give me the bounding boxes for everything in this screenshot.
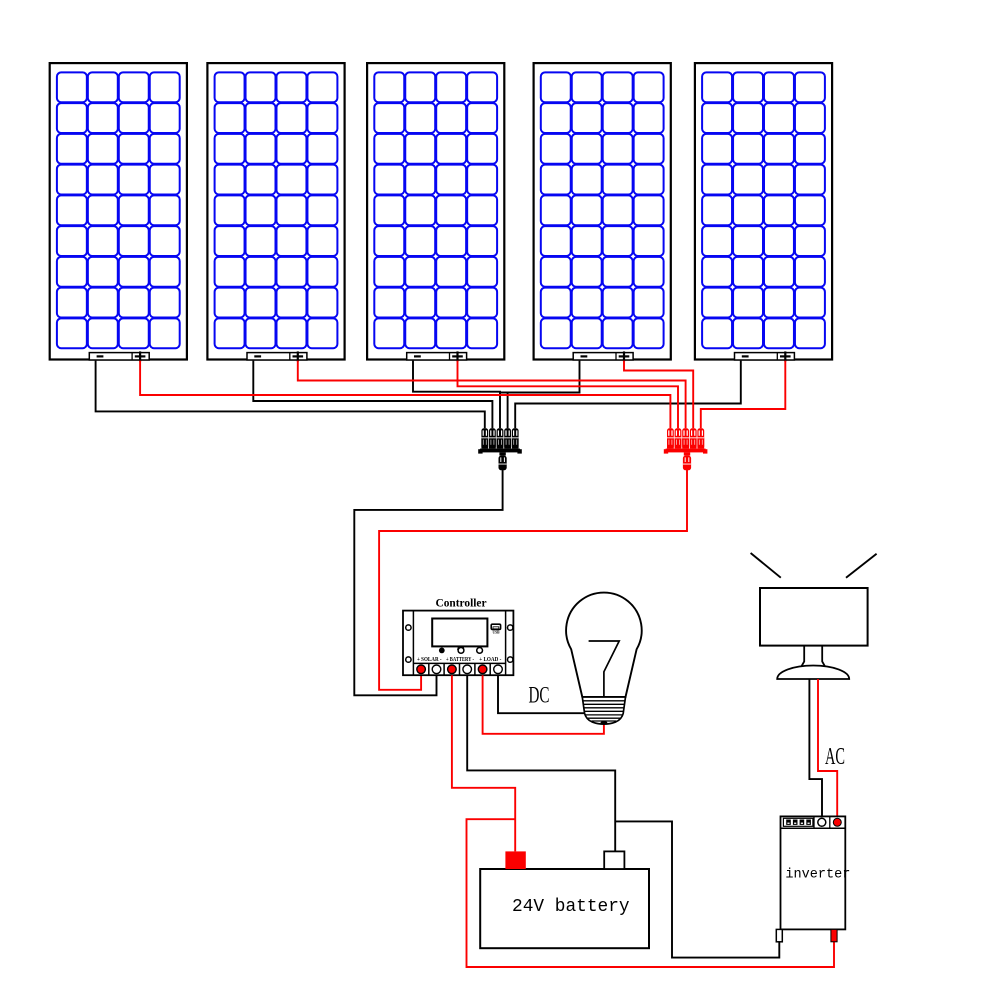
- svg-text:USB: USB: [493, 630, 501, 634]
- svg-text:DC: DC: [529, 683, 550, 709]
- svg-text:+ BATTERY -: + BATTERY -: [446, 656, 474, 663]
- svg-text:Controller: Controller: [436, 598, 487, 610]
- svg-text:inverter: inverter: [785, 868, 850, 883]
- svg-text:24V battery: 24V battery: [512, 896, 630, 917]
- svg-text:+ LOAD -: + LOAD -: [479, 656, 501, 663]
- svg-text:AC: AC: [825, 744, 845, 770]
- svg-text:+ SOLAR -: + SOLAR -: [417, 656, 442, 663]
